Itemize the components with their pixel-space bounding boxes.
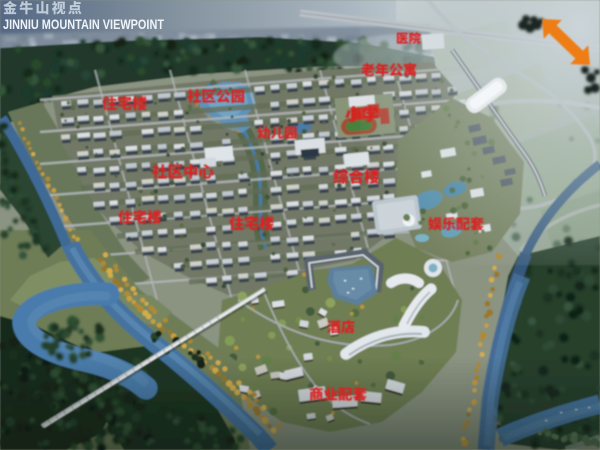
svg-text:JINNIU MOUNTAIN VIEWPOINT: JINNIU MOUNTAIN VIEWPOINT (3, 17, 165, 32)
